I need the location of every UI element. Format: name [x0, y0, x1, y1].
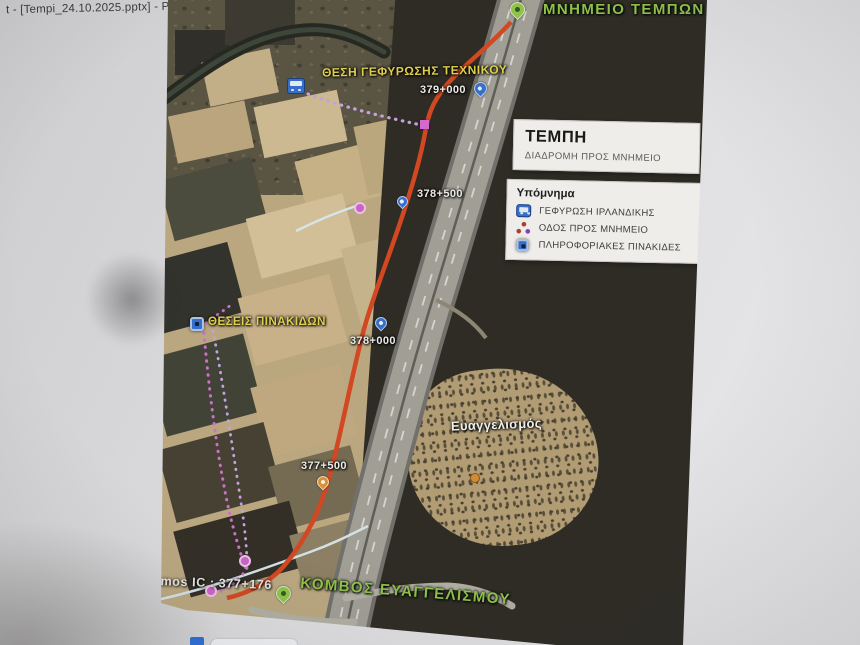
map-title: ΤΕΜΠΗ	[525, 127, 688, 149]
legend-item: ΠΛΗΡΟΦΟΡΙΑΚΕΣ ΠΙΝΑΚΙΔΕΣ	[515, 238, 697, 255]
village-poi-dot	[470, 473, 480, 483]
bus-icon	[516, 204, 531, 217]
chainage-label-378500: 378+500	[417, 188, 463, 200]
dotted-bridge-connector	[308, 94, 421, 125]
sign-sites-label: ΘΕΣΕΙΣ ΠΙΝΑΚΙΔΩΝ	[208, 316, 326, 328]
dotted-signs-connector-a	[204, 333, 246, 569]
chainage-label-378000: 378+000	[350, 335, 396, 347]
legend-item-label: ΓΕΦΥΡΩΣΗ ΙΡΛΑΝΔΙΚΗΣ	[539, 206, 655, 219]
legend-box: Υπόμνημα ΓΕΦΥΡΩΣΗ ΙΡΛΑΝΔΙΚΗΣ ΟΔΟΣ ΠΡΟΣ Μ…	[505, 179, 709, 264]
legend-item: ΓΕΦΥΡΩΣΗ ΙΡΛΑΝΔΙΚΗΣ	[516, 204, 698, 221]
dotted-signs-connector-b	[213, 331, 247, 566]
chainage-label-377500: 377+500	[301, 460, 347, 472]
sign-point-marker	[239, 555, 251, 567]
info-sign-icon	[190, 317, 204, 331]
monument-label: ΜΝΗΜΕΙΟ ΤΕΜΠΩΝ	[543, 1, 705, 18]
legend-item: ΟΔΟΣ ΠΡΟΣ ΜΝΗΜΕΙΟ	[516, 221, 698, 238]
bus-icon	[287, 78, 305, 94]
info-sign-icon	[515, 238, 530, 251]
chainage-label-379000: 379+000	[420, 84, 466, 96]
legend-item-label: ΟΔΟΣ ΠΡΟΣ ΜΝΗΜΕΙΟ	[539, 223, 649, 236]
route-point-marker	[354, 202, 366, 214]
village-label: Ευαγγελισμός	[451, 415, 542, 433]
taskbar-app-icon[interactable]	[190, 637, 204, 645]
route-dots-icon	[516, 221, 531, 234]
local-road-mid	[296, 206, 356, 231]
taskbar-search-pill[interactable]	[211, 639, 297, 645]
bridge-point-marker	[420, 120, 429, 129]
screen-reflection-smudge	[86, 252, 178, 347]
map-title-box: ΤΕΜΠΗ ΔΙΑΔΡΟΜΗ ΠΡΟΣ ΜΝΗΜΕΙΟ	[512, 119, 700, 174]
legend-item-label: ΠΛΗΡΟΦΟΡΙΑΚΕΣ ΠΙΝΑΚΙΔΕΣ	[538, 240, 681, 254]
map-subtitle: ΔΙΑΔΡΟΜΗ ΠΡΟΣ ΜΝΗΜΕΙΟ	[525, 150, 688, 164]
photographed-screen: t - [Tempi_24.10.2025.pptx] - PowerPoint	[0, 0, 860, 645]
legend-title: Υπόμνημα	[516, 187, 698, 203]
motorway-surface	[342, 0, 524, 645]
